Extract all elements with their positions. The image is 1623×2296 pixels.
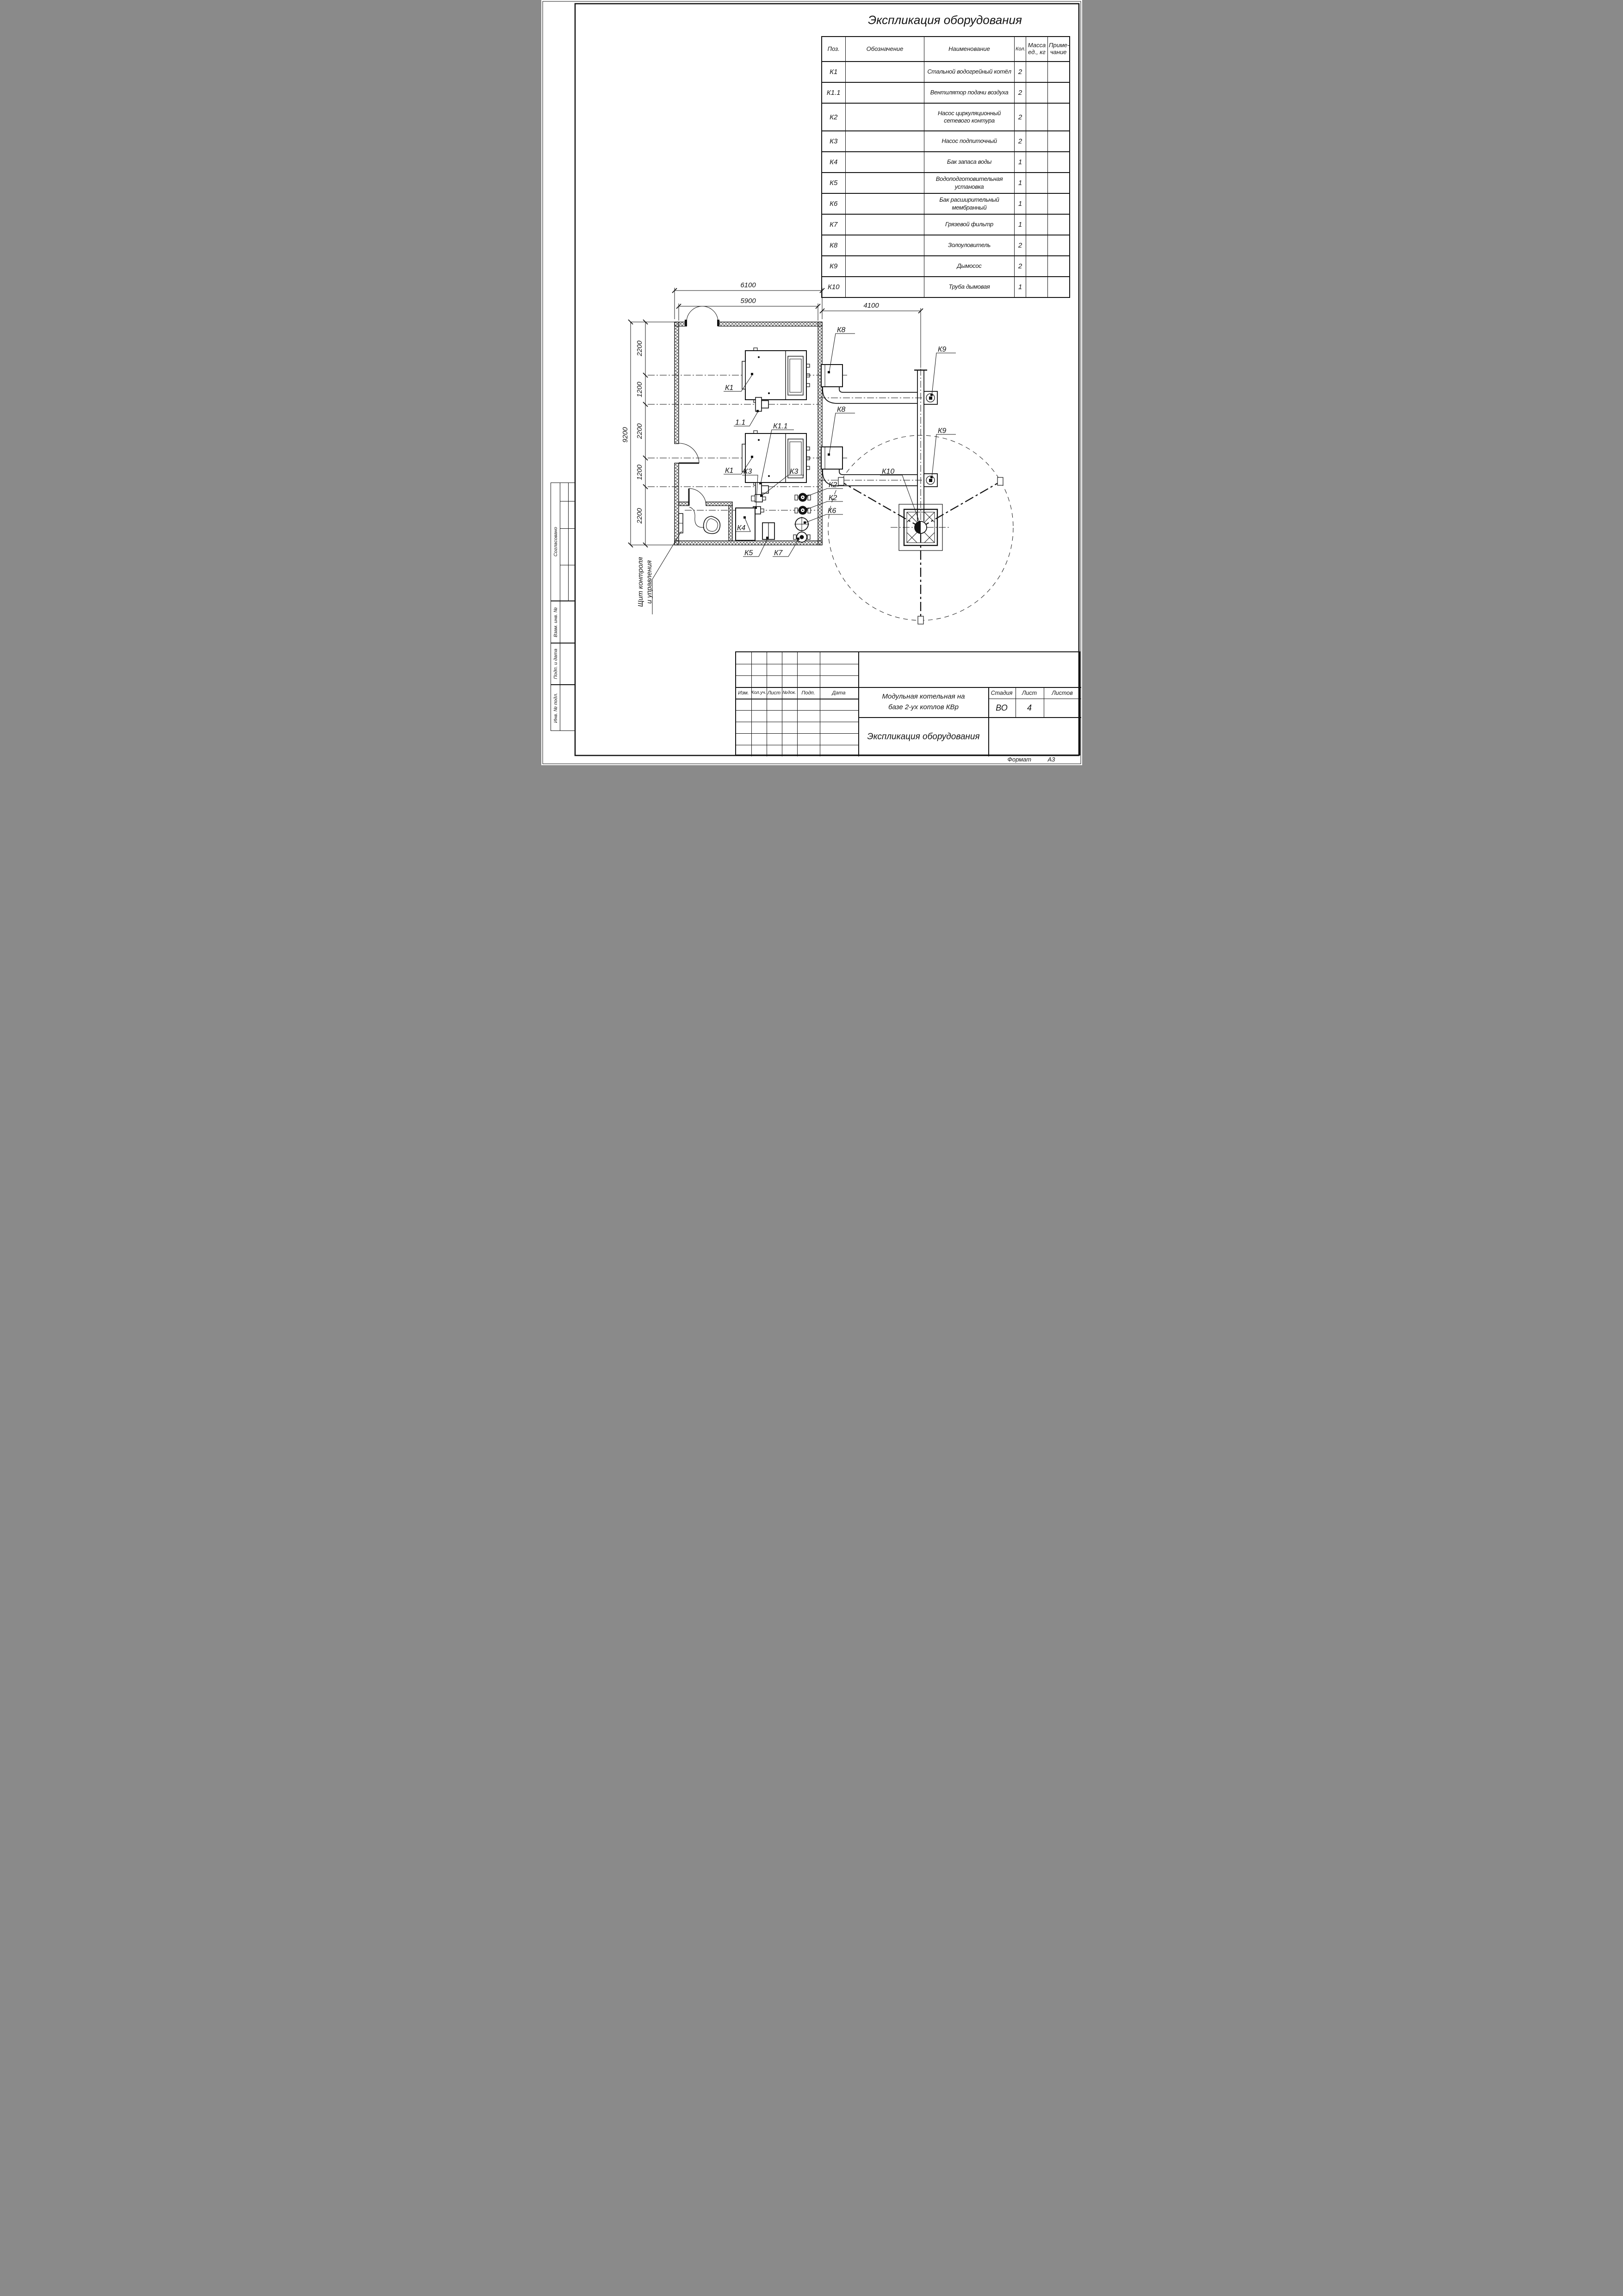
expansion-tank-k6 <box>794 517 809 532</box>
format-label: Формат <box>1008 756 1032 763</box>
guy-anchor <box>918 616 923 624</box>
sheets-label: Листов <box>1044 687 1081 699</box>
equipment-spec-table: Поз. Обозначение Наименование Кол. Масса… <box>821 36 1070 298</box>
control-panel-callout: Щит контроля и управления <box>637 547 655 617</box>
drawing-sheet: 6100 5900 4100 9200 2200 1200 2200 1200 … <box>541 0 1082 765</box>
spec-row: К8 Золоуловитель 2 <box>822 235 1070 256</box>
label-k10: К10 <box>882 468 894 476</box>
svg-text:2200: 2200 <box>636 423 644 439</box>
label-k8: К8 <box>837 326 845 334</box>
label-k8: К8 <box>837 406 845 414</box>
dim-inner-width: 5900 <box>740 297 756 305</box>
entrance-double-door <box>685 306 719 326</box>
stamp-inv-orig: Инв. № подл. <box>551 685 575 731</box>
dim-overall-width: 6100 <box>740 281 756 289</box>
inner-door <box>689 489 706 506</box>
rev-col-ndok: №док. <box>782 687 797 699</box>
stamp-inv-orig-label: Инв. № подл. <box>553 693 558 723</box>
sheet-number: 4 <box>1016 699 1044 717</box>
stamp-agreed: Согласовано <box>551 483 575 601</box>
side-door <box>679 443 699 463</box>
col-header-qty: Кол. <box>1015 37 1026 62</box>
stage-value: ВО <box>988 699 1016 717</box>
stamp-repl-inv-label: Взам. инв. № <box>553 607 558 637</box>
spec-row: К1.1 Вентилятор подачи воздуха 2 <box>822 82 1070 103</box>
sheets-total <box>1044 699 1081 717</box>
label-k1: К1 <box>725 384 733 392</box>
spec-row: К10 Труба дымовая 1 <box>822 277 1070 297</box>
stamp-sign-date: Подп. и дата <box>551 643 575 685</box>
rev-col-data: Дата <box>820 687 858 699</box>
spec-table-title: Экспликация оборудования <box>821 13 1069 27</box>
sink <box>689 507 720 533</box>
rev-col-izm: Изм. <box>736 687 751 699</box>
stamp-agreed-label: Согласовано <box>553 527 558 557</box>
format-value: А3 <box>1048 756 1055 763</box>
svg-text:2200: 2200 <box>636 508 644 524</box>
rev-col-list: Лист <box>767 687 782 699</box>
dimensions <box>628 288 923 547</box>
spec-row: К3 Насос подпиточный 2 <box>822 131 1070 152</box>
col-header-name: Наименование <box>924 37 1015 62</box>
col-header-mass: Масса ед., кг <box>1026 37 1048 62</box>
rev-col-podp: Подп. <box>797 687 820 699</box>
title-block: Изм. Кол.уч. Лист №док. Подп. Дата Модул… <box>735 651 1080 755</box>
spec-row: К9 Дымосос 2 <box>822 256 1070 277</box>
spec-row: К4 Бак запаса воды 1 <box>822 152 1070 173</box>
label-k3: К3 <box>743 468 752 476</box>
guy-anchor <box>838 477 844 485</box>
col-header-designation: Обозначение <box>846 37 924 62</box>
stage-label: Стадия <box>988 687 1016 699</box>
spec-row: К7 Грязевой фильтр 1 <box>822 214 1070 235</box>
pump-k2 <box>795 493 811 502</box>
svg-text:1200: 1200 <box>636 464 644 480</box>
label-k5: К5 <box>744 549 753 557</box>
project-title: Модульная котельная на базе 2-ух котлов … <box>859 687 988 717</box>
stamp-sign-date-label: Подп. и дата <box>553 649 558 679</box>
svg-text:2200: 2200 <box>636 340 644 357</box>
guy-anchor <box>997 477 1003 485</box>
col-header-note: Приме- чание <box>1048 37 1070 62</box>
col-header-pos: Поз. <box>822 37 846 62</box>
label-k1-fan: 1.1 <box>735 419 745 427</box>
pump-k3 <box>751 495 766 502</box>
dim-overall-height: 9200 <box>621 427 629 443</box>
spec-row: К1 Стальной водогрейный котёл 2 <box>822 62 1070 82</box>
label-k3: К3 <box>790 468 798 476</box>
label-k1-1: К1.1 <box>773 422 788 430</box>
sheet-name: Экспликация оборудования <box>859 717 988 756</box>
label-k9: К9 <box>938 346 946 353</box>
spec-row: К6 Бак расширительный мембранный 1 <box>822 193 1070 214</box>
pump-k2 <box>795 506 811 515</box>
label-k4: К4 <box>737 524 745 532</box>
rev-col-koluch: Кол.уч. <box>751 687 767 699</box>
label-k1: К1 <box>725 467 733 475</box>
dimension-labels: 6100 5900 4100 9200 2200 1200 2200 1200 … <box>621 281 879 524</box>
spec-row: К2 Насос циркуляционный сетевого контура… <box>822 103 1070 131</box>
label-k7: К7 <box>774 549 783 557</box>
label-k6: К6 <box>828 507 836 515</box>
sheet-label: Лист <box>1016 687 1044 699</box>
dim-flue-offset: 4100 <box>863 302 879 309</box>
svg-text:1200: 1200 <box>636 382 644 397</box>
spec-header-row: Поз. Обозначение Наименование Кол. Масса… <box>822 37 1070 62</box>
label-k2: К2 <box>829 494 837 502</box>
label-k2: К2 <box>829 481 837 489</box>
spec-row: К5 Водоподготовительная установка 1 <box>822 173 1070 193</box>
label-k9: К9 <box>938 427 946 435</box>
control-panel <box>679 514 683 533</box>
stamp-repl-inv: Взам. инв. № <box>551 601 575 643</box>
